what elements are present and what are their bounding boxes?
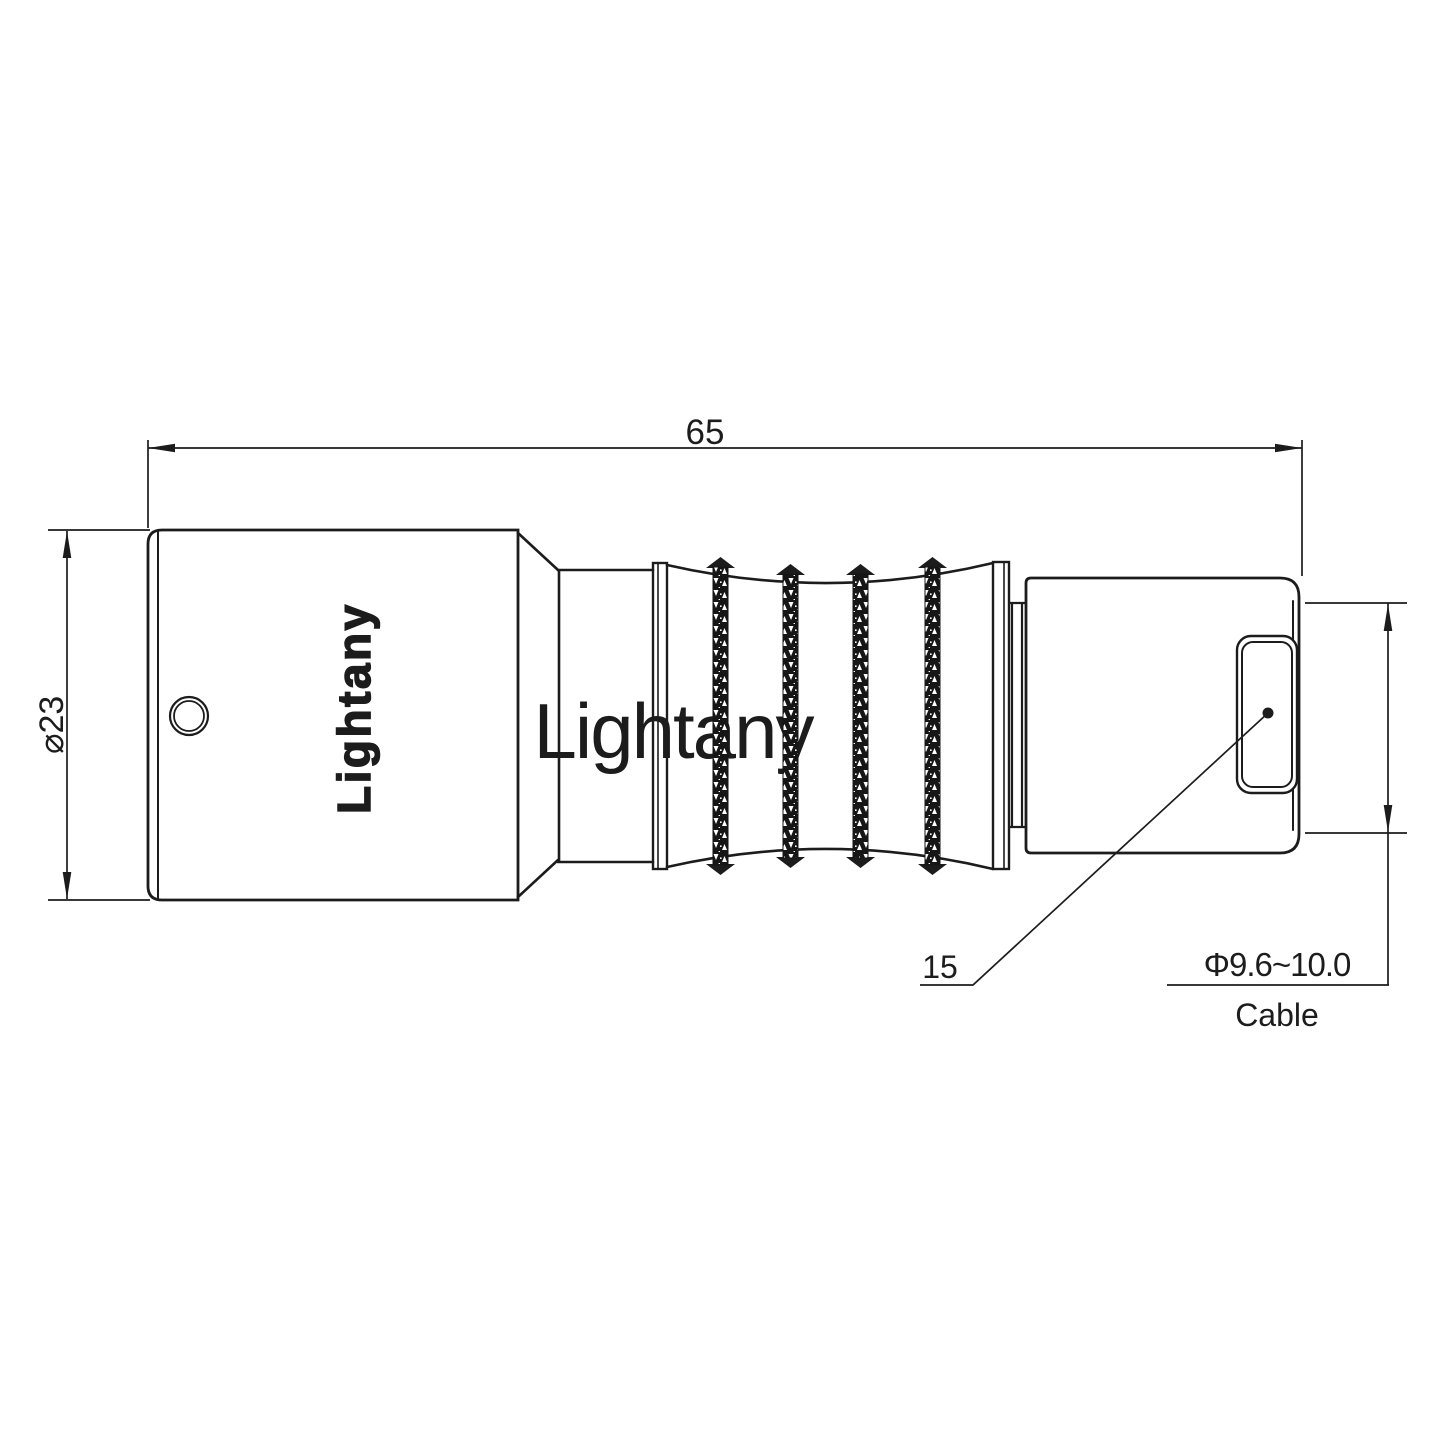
cable-diameter-range-label: Φ9.6~10.0 <box>1204 946 1351 983</box>
body-diameter-label: ⌀23 <box>33 696 71 754</box>
watermark-text: Lightany <box>534 687 815 775</box>
connector-technical-drawing: Lightany Lightany <box>0 0 1440 1440</box>
overall-length-label: 65 <box>686 413 725 452</box>
drawing-page: Lightany Lightany <box>0 0 1440 1440</box>
back-length-label: 15 <box>922 949 958 985</box>
leader-dot <box>1263 708 1274 719</box>
brand-text: Lightany <box>328 602 380 814</box>
cable-word-label: Cable <box>1235 997 1319 1033</box>
